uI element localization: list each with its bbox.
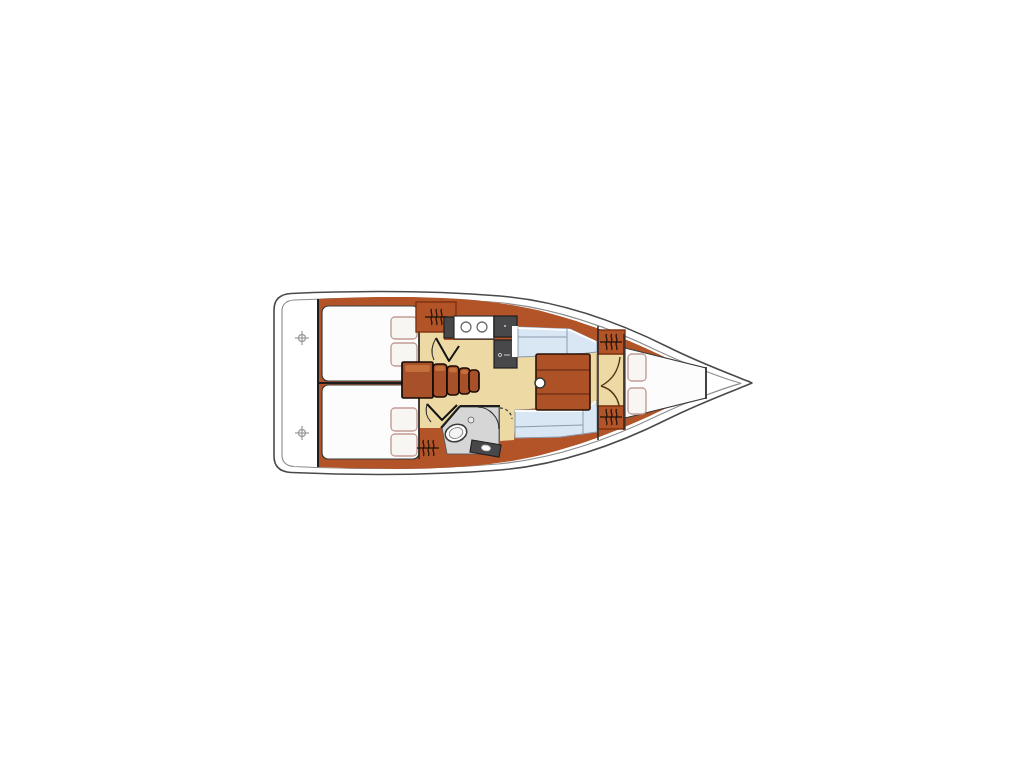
pillow <box>391 408 417 431</box>
shower-drain <box>468 417 474 423</box>
galley-settee-gap <box>512 326 518 357</box>
pillow <box>391 434 417 456</box>
step-highlight <box>449 368 457 373</box>
companionway-steps <box>402 362 479 398</box>
forward-bulkhead-section <box>597 326 625 440</box>
galley-module <box>444 317 454 338</box>
pillow <box>628 354 646 381</box>
step-highlight <box>405 365 430 372</box>
galley-sink-counter <box>454 316 494 339</box>
stove-knob <box>504 325 506 327</box>
step-highlight <box>435 366 445 371</box>
sink-basin-icon <box>461 322 471 332</box>
pillow <box>628 388 646 414</box>
boat-floor-plan-canvas <box>0 0 1024 768</box>
mast-post-icon <box>535 378 545 388</box>
pillow <box>391 317 417 339</box>
step <box>469 370 479 392</box>
sink-basin-icon <box>477 322 487 332</box>
boat-floor-plan <box>0 0 1024 768</box>
step-highlight <box>461 370 468 374</box>
